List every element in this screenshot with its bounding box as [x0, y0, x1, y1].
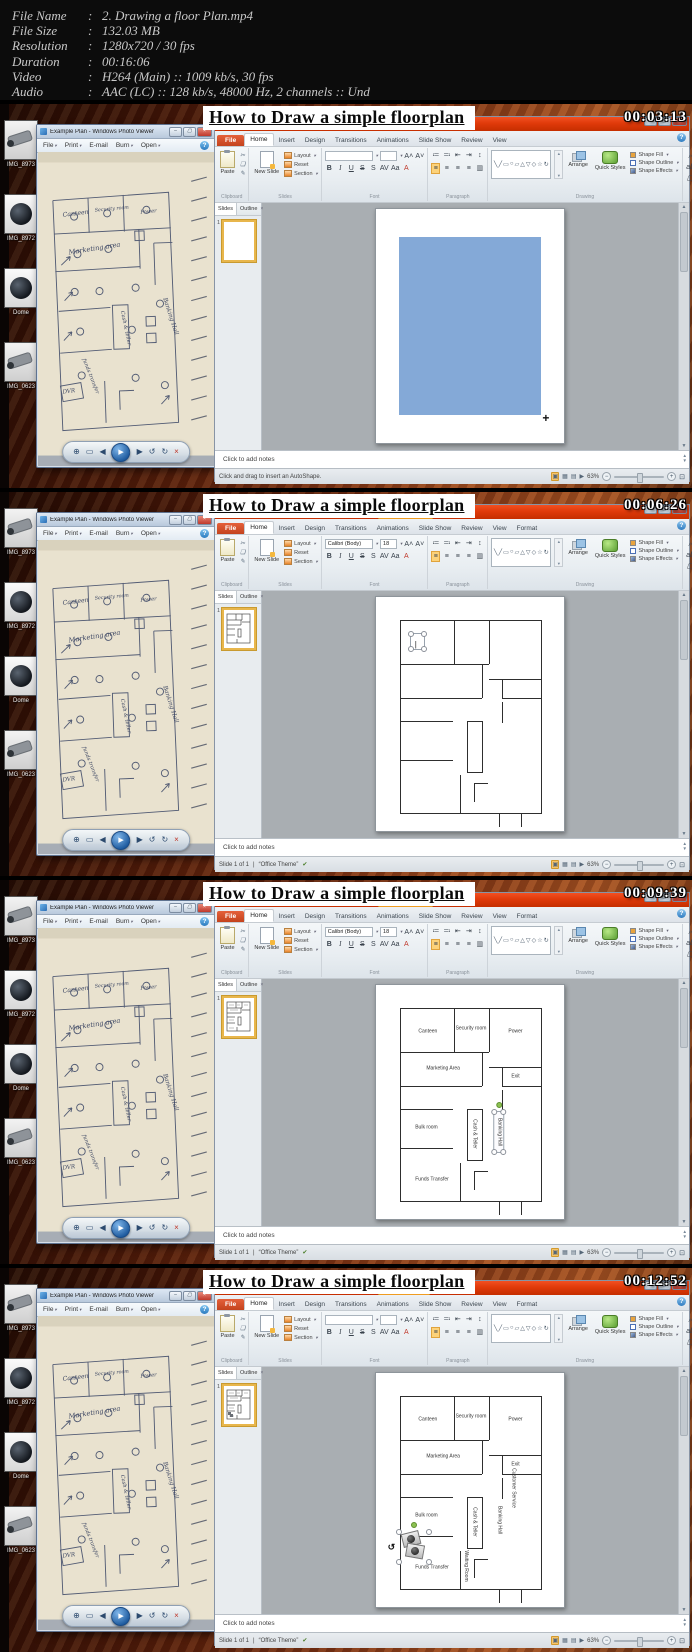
desktop-icon[interactable]: Dome [4, 1044, 38, 1092]
tab-view[interactable]: View [488, 911, 512, 922]
arrange-button[interactable]: Arrange [566, 150, 590, 169]
numbering-icon[interactable]: ≕ [442, 151, 451, 160]
zoom-slider[interactable] [614, 476, 664, 478]
align-left-icon[interactable]: ≡ [431, 939, 440, 950]
scroll-up-icon[interactable]: ▲ [682, 980, 687, 986]
desktop-icon[interactable]: IMG_8972 [4, 582, 38, 630]
copy-icon[interactable]: ❏ [240, 1325, 245, 1332]
section-button[interactable]: Section▾ [284, 170, 318, 177]
tab-outline[interactable]: Outline [237, 1370, 260, 1376]
strikethrough-button[interactable]: S [358, 164, 367, 173]
tab-design[interactable]: Design [300, 135, 330, 146]
tab-animations[interactable]: Animations [372, 135, 414, 146]
desktop-icon[interactable]: IMG_8973 [4, 508, 38, 556]
justify-icon[interactable]: ≡ [464, 1328, 473, 1337]
shapes-gallery[interactable]: ╲╱▭○▱ △▽◇☆↻ [491, 538, 551, 567]
zoom-slider[interactable] [614, 864, 664, 866]
slide[interactable]: + [375, 596, 565, 832]
tab-animations[interactable]: Animations [372, 1299, 414, 1310]
slideshow-button[interactable]: ▶ [112, 443, 131, 462]
new-slide-button[interactable]: New Slide [252, 538, 281, 564]
notes-pane[interactable]: Click to add notes ▲▼ [215, 838, 689, 856]
normal-view-icon[interactable]: ▣ [551, 860, 559, 869]
room-label[interactable]: Customer Service [510, 1468, 516, 1508]
paste-button[interactable]: Paste [218, 926, 237, 952]
slideshow-view-icon[interactable]: ▶ [579, 473, 584, 480]
grow-font-icon[interactable]: A˄ [404, 540, 413, 549]
selected-textbox[interactable]: | [410, 633, 425, 650]
shape-fill-button[interactable]: Shape Fill▾ [630, 540, 678, 546]
underline-button[interactable]: U [347, 552, 356, 561]
rotate-ccw-button[interactable]: ↺ [149, 836, 156, 844]
scrollbar-thumb[interactable] [680, 600, 688, 660]
font-color-button[interactable]: A [402, 552, 411, 561]
scrollbar-thumb[interactable] [680, 988, 688, 1048]
columns-icon[interactable]: ▥ [475, 1328, 484, 1337]
room-label[interactable]: Banking Hall [493, 1111, 505, 1153]
layout-button[interactable]: Layout▾ [284, 1316, 318, 1323]
gallery-scrollbar[interactable]: ▲▼ [554, 1314, 563, 1343]
notes-placeholder[interactable]: Click to add notes [223, 1232, 275, 1239]
align-left-icon[interactable]: ≡ [431, 1327, 440, 1338]
tab-design[interactable]: Design [300, 523, 330, 534]
zoom-slider-thumb[interactable] [637, 1249, 643, 1259]
tab-insert[interactable]: Insert [274, 1299, 300, 1310]
menu-file[interactable]: File▾ [43, 142, 57, 149]
quick-styles-button[interactable]: Quick Styles [593, 538, 628, 560]
room-label[interactable]: Bulk room [415, 1126, 438, 1132]
font-size-select[interactable] [380, 1315, 397, 1325]
vertical-scrollbar[interactable]: ▲▼ [678, 203, 689, 450]
room-label[interactable]: Exit [511, 1074, 519, 1080]
menu-open[interactable]: Open▾ [141, 1306, 160, 1313]
zoom-out-icon[interactable]: − [602, 860, 611, 869]
find-button[interactable]: ⌕Find [686, 1316, 692, 1325]
zoom-in-icon[interactable]: + [667, 860, 676, 869]
rotate-ccw-button[interactable]: ↺ [149, 448, 156, 456]
vertical-scrollbar[interactable]: ▲▼ [678, 1367, 689, 1614]
text-shadow-button[interactable]: S [369, 940, 378, 949]
italic-button[interactable]: I [336, 164, 345, 173]
font-size-select[interactable]: 18 [380, 927, 397, 937]
tab-slide-show[interactable]: Slide Show [414, 523, 457, 534]
vertical-scrollbar[interactable]: ▲▼ [678, 979, 689, 1226]
tab-review[interactable]: Review [456, 523, 487, 534]
tab-review[interactable]: Review [456, 911, 487, 922]
change-case-icon[interactable]: Aa [391, 552, 400, 561]
tab-insert[interactable]: Insert [274, 523, 300, 534]
menu-file[interactable]: File▾ [43, 1306, 57, 1313]
select-button[interactable]: ▢Select▾ [686, 174, 692, 183]
slideshow-view-icon[interactable]: ▶ [579, 1249, 584, 1256]
shape-fill-button[interactable]: Shape Fill▾ [630, 1316, 678, 1322]
menu-open[interactable]: Open▾ [141, 918, 160, 925]
decrease-indent-icon[interactable]: ⇤ [453, 927, 462, 936]
text-shadow-button[interactable]: S [369, 552, 378, 561]
room-label[interactable]: Funds Transfer [415, 1565, 449, 1571]
notes-pane[interactable]: Click to add notes ▲▼ [215, 1226, 689, 1244]
delete-button[interactable]: × [174, 448, 179, 456]
actual-size-icon[interactable]: ▭ [86, 1224, 94, 1232]
change-case-icon[interactable]: Aa [391, 164, 400, 173]
slideshow-button[interactable]: ▶ [112, 831, 131, 850]
shapes-gallery[interactable]: ╲╱▭○▱ △▽◇☆↻ [491, 926, 551, 955]
italic-button[interactable]: I [336, 552, 345, 561]
previous-button[interactable]: ◀ [99, 1612, 105, 1620]
desktop-icon[interactable]: IMG_0623 [4, 1118, 38, 1166]
decrease-indent-icon[interactable]: ⇤ [453, 151, 462, 160]
select-button[interactable]: ▢Select▾ [686, 1338, 692, 1347]
desktop-icon[interactable]: IMG_8972 [4, 1358, 38, 1406]
align-right-icon[interactable]: ≡ [453, 552, 462, 561]
align-center-icon[interactable]: ≡ [442, 164, 451, 173]
paste-button[interactable]: Paste [218, 538, 237, 564]
arrange-button[interactable]: Arrange [566, 926, 590, 945]
zoom-slider[interactable] [614, 1252, 664, 1254]
scroll-up-icon[interactable]: ▲ [682, 1368, 687, 1374]
minimize-button[interactable]: – [169, 903, 182, 913]
shape-outline-button[interactable]: Shape Outline▾ [630, 548, 678, 554]
tab-format[interactable]: Format [512, 523, 543, 534]
line-spacing-icon[interactable]: ↕ [475, 539, 484, 548]
cut-icon[interactable]: ✂ [240, 540, 245, 547]
format-painter-icon[interactable]: ✎ [240, 1334, 245, 1341]
italic-button[interactable]: I [336, 940, 345, 949]
room-label[interactable]: Canteen [418, 1418, 437, 1424]
photo-viewer-titlebar[interactable]: Example Plan - Windows Photo Viewer –▢× [37, 125, 215, 139]
tab-file[interactable]: File [217, 1299, 244, 1310]
menu-email[interactable]: E-mail [89, 1306, 107, 1313]
slide-thumbnail[interactable] [222, 608, 256, 650]
numbering-icon[interactable]: ≕ [442, 539, 451, 548]
format-painter-icon[interactable]: ✎ [240, 170, 245, 177]
shape-effects-button[interactable]: Shape Effects▾ [630, 1332, 678, 1338]
bullets-icon[interactable]: ≔ [431, 151, 440, 160]
shape-effects-button[interactable]: Shape Effects▾ [630, 168, 678, 174]
zoom-slider-thumb[interactable] [637, 1637, 643, 1647]
tab-review[interactable]: Review [456, 135, 487, 146]
minimize-button[interactable]: – [169, 127, 182, 137]
rotate-cw-button[interactable]: ↻ [161, 836, 168, 844]
columns-icon[interactable]: ▥ [475, 552, 484, 561]
grow-font-icon[interactable]: A˄ [404, 928, 413, 937]
previous-button[interactable]: ◀ [99, 448, 105, 456]
copy-icon[interactable]: ❏ [240, 549, 245, 556]
reset-button[interactable]: Reset [284, 161, 318, 168]
numbering-icon[interactable]: ≕ [442, 1315, 451, 1324]
strikethrough-button[interactable]: S [358, 940, 367, 949]
menu-print[interactable]: Print▾ [65, 530, 82, 537]
room-label[interactable]: Exit [511, 1462, 519, 1468]
find-button[interactable]: ⌕Find [686, 152, 692, 161]
section-button[interactable]: Section▾ [284, 946, 318, 953]
tab-home[interactable]: Home [244, 521, 273, 534]
slideshow-view-icon[interactable]: ▶ [579, 861, 584, 868]
layout-button[interactable]: Layout▾ [284, 152, 318, 159]
line-spacing-icon[interactable]: ↕ [475, 927, 484, 936]
shape-outline-button[interactable]: Shape Outline▾ [630, 160, 678, 166]
arrange-button[interactable]: Arrange [566, 538, 590, 557]
shape-outline-button[interactable]: Shape Outline▾ [630, 936, 678, 942]
new-slide-button[interactable]: New Slide [252, 926, 281, 952]
increase-indent-icon[interactable]: ⇥ [464, 539, 473, 548]
font-name-select[interactable]: Calibri (Body) [325, 927, 373, 937]
cut-icon[interactable]: ✂ [240, 1316, 245, 1323]
new-slide-button[interactable]: New Slide [252, 150, 281, 176]
cut-icon[interactable]: ✂ [240, 928, 245, 935]
next-button[interactable]: ▶ [137, 1612, 143, 1620]
zoom-icon[interactable]: ⊕ [73, 836, 80, 844]
underline-button[interactable]: U [347, 1328, 356, 1337]
room-label[interactable]: Power [508, 1030, 522, 1036]
notes-scrollbar[interactable]: ▲▼ [683, 841, 687, 851]
quick-styles-button[interactable]: Quick Styles [593, 926, 628, 948]
section-button[interactable]: Section▾ [284, 558, 318, 565]
shapes-gallery[interactable]: ╲╱▭○▱ △▽◇☆↻ [491, 150, 551, 179]
menu-open[interactable]: Open▾ [141, 530, 160, 537]
change-case-icon[interactable]: Aa [391, 1328, 400, 1337]
replace-button[interactable]: abReplace▾ [686, 163, 692, 172]
replace-button[interactable]: abReplace▾ [686, 1327, 692, 1336]
tab-view[interactable]: View [488, 1299, 512, 1310]
section-button[interactable]: Section▾ [284, 1334, 318, 1341]
slide[interactable]: + [375, 208, 565, 444]
room-label[interactable]: Marketing Area [426, 1454, 460, 1460]
zoom-in-icon[interactable]: + [667, 1636, 676, 1645]
maximize-button[interactable]: ▢ [183, 1291, 196, 1301]
character-spacing-icon[interactable]: AV [380, 940, 389, 949]
character-spacing-icon[interactable]: AV [380, 552, 389, 561]
zoom-out-icon[interactable]: − [602, 1636, 611, 1645]
justify-icon[interactable]: ≡ [464, 552, 473, 561]
desktop-icon[interactable]: IMG_0623 [4, 1506, 38, 1554]
room-label[interactable]: Funds Transfer [415, 1177, 449, 1183]
photo-viewer-titlebar[interactable]: Example Plan - Windows Photo Viewer –▢× [37, 513, 215, 527]
notes-placeholder[interactable]: Click to add notes [223, 456, 275, 463]
menu-burn[interactable]: Burn▾ [116, 1306, 133, 1313]
notes-scrollbar[interactable]: ▲▼ [683, 453, 687, 463]
desktop-icon[interactable]: IMG_8972 [4, 194, 38, 242]
reading-view-icon[interactable]: ▤ [571, 1249, 577, 1256]
slide-sorter-view-icon[interactable]: ▦ [562, 473, 568, 480]
shape-fill-button[interactable]: Shape Fill▾ [630, 928, 678, 934]
menu-burn[interactable]: Burn▾ [116, 530, 133, 537]
slide-sorter-view-icon[interactable]: ▦ [562, 861, 568, 868]
tab-home[interactable]: Home [244, 1297, 273, 1310]
tab-animations[interactable]: Animations [372, 911, 414, 922]
font-color-button[interactable]: A [402, 164, 411, 173]
shape-effects-button[interactable]: Shape Effects▾ [630, 556, 678, 562]
replace-button[interactable]: abReplace▾ [686, 551, 692, 560]
previous-button[interactable]: ◀ [99, 1224, 105, 1232]
underline-button[interactable]: U [347, 940, 356, 949]
spellcheck-icon[interactable]: ✔ [302, 1249, 307, 1256]
find-button[interactable]: ⌕Find [686, 928, 692, 937]
normal-view-icon[interactable]: ▣ [551, 472, 559, 481]
desktop-icon[interactable]: Dome [4, 1432, 38, 1480]
scroll-down-icon[interactable]: ▼ [682, 831, 687, 837]
scroll-down-icon[interactable]: ▼ [682, 443, 687, 449]
reset-button[interactable]: Reset [284, 1325, 318, 1332]
text-shadow-button[interactable]: S [369, 164, 378, 173]
text-shadow-button[interactable]: S [369, 1328, 378, 1337]
cut-icon[interactable]: ✂ [240, 152, 245, 159]
align-center-icon[interactable]: ≡ [442, 940, 451, 949]
room-label[interactable]: Cash & Teller [471, 1119, 477, 1149]
increase-indent-icon[interactable]: ⇥ [464, 927, 473, 936]
arrange-button[interactable]: Arrange [566, 1314, 590, 1333]
slide-thumbnail[interactable] [222, 996, 256, 1038]
increase-indent-icon[interactable]: ⇥ [464, 1315, 473, 1324]
paste-button[interactable]: Paste [218, 1314, 237, 1340]
photo-viewer-titlebar[interactable]: Example Plan - Windows Photo Viewer –▢× [37, 901, 215, 915]
rotate-ccw-button[interactable]: ↺ [149, 1224, 156, 1232]
justify-icon[interactable]: ≡ [464, 164, 473, 173]
zoom-out-icon[interactable]: − [602, 1248, 611, 1257]
scroll-up-icon[interactable]: ▲ [682, 204, 687, 210]
rotate-cw-button[interactable]: ↻ [161, 448, 168, 456]
previous-button[interactable]: ◀ [99, 836, 105, 844]
help-icon[interactable]: ? [200, 917, 209, 926]
notes-scrollbar[interactable]: ▲▼ [683, 1229, 687, 1239]
align-right-icon[interactable]: ≡ [453, 1328, 462, 1337]
copy-icon[interactable]: ❏ [240, 937, 245, 944]
menu-burn[interactable]: Burn▾ [116, 142, 133, 149]
tab-outline[interactable]: Outline [237, 982, 260, 988]
zoom-in-icon[interactable]: + [667, 1248, 676, 1257]
tab-slides[interactable]: Slides [215, 591, 237, 603]
tab-view[interactable]: View [488, 523, 512, 534]
decrease-indent-icon[interactable]: ⇤ [453, 539, 462, 548]
zoom-icon[interactable]: ⊕ [73, 448, 80, 456]
shape-outline-button[interactable]: Shape Outline▾ [630, 1324, 678, 1330]
shape-effects-button[interactable]: Shape Effects▾ [630, 944, 678, 950]
vertical-scrollbar[interactable]: ▲▼ [678, 591, 689, 838]
gallery-scrollbar[interactable]: ▲▼ [554, 538, 563, 567]
maximize-button[interactable]: ▢ [183, 127, 196, 137]
slideshow-view-icon[interactable]: ▶ [579, 1637, 584, 1644]
shape-fill-button[interactable]: Shape Fill▾ [630, 152, 678, 158]
rotate-cw-button[interactable]: ↻ [161, 1612, 168, 1620]
spellcheck-icon[interactable]: ✔ [302, 861, 307, 868]
menu-email[interactable]: E-mail [89, 530, 107, 537]
line-spacing-icon[interactable]: ↕ [475, 1315, 484, 1324]
desktop-icon[interactable]: IMG_8972 [4, 970, 38, 1018]
format-painter-icon[interactable]: ✎ [240, 946, 245, 953]
tab-insert[interactable]: Insert [274, 135, 300, 146]
reset-button[interactable]: Reset [284, 549, 318, 556]
tab-file[interactable]: File [217, 523, 244, 534]
room-label[interactable]: Security room [456, 1026, 487, 1032]
help-icon[interactable]: ? [677, 1297, 686, 1306]
tab-design[interactable]: Design [300, 911, 330, 922]
tab-format[interactable]: Format [512, 1299, 543, 1310]
columns-icon[interactable]: ▥ [475, 164, 484, 173]
bold-button[interactable]: B [325, 940, 334, 949]
slideshow-button[interactable]: ▶ [112, 1219, 131, 1238]
numbering-icon[interactable]: ≕ [442, 927, 451, 936]
quick-styles-button[interactable]: Quick Styles [593, 1314, 628, 1336]
slide-sorter-view-icon[interactable]: ▦ [562, 1249, 568, 1256]
tab-home[interactable]: Home [244, 133, 273, 146]
reading-view-icon[interactable]: ▤ [571, 861, 577, 868]
room-label[interactable]: Cash & Teller [471, 1507, 477, 1537]
help-icon[interactable]: ? [677, 909, 686, 918]
format-painter-icon[interactable]: ✎ [240, 558, 245, 565]
strikethrough-button[interactable]: S [358, 1328, 367, 1337]
gallery-scrollbar[interactable]: ▲▼ [554, 150, 563, 179]
tab-transitions[interactable]: Transitions [330, 523, 372, 534]
tab-review[interactable]: Review [456, 1299, 487, 1310]
desktop-icon[interactable]: IMG_8973 [4, 120, 38, 168]
menu-email[interactable]: E-mail [89, 142, 107, 149]
align-left-icon[interactable]: ≡ [431, 551, 440, 562]
slide[interactable]: + [375, 1372, 565, 1608]
bold-button[interactable]: B [325, 1328, 334, 1337]
font-name-select[interactable]: Calibri (Body) [325, 539, 373, 549]
room-label[interactable]: Waiting Room [463, 1551, 469, 1582]
italic-button[interactable]: I [336, 1328, 345, 1337]
help-icon[interactable]: ? [677, 521, 686, 530]
slideshow-button[interactable]: ▶ [112, 1607, 131, 1626]
room-label[interactable]: Security room [456, 1414, 487, 1420]
zoom-out-icon[interactable]: − [602, 472, 611, 481]
strikethrough-button[interactable]: S [358, 552, 367, 561]
menu-open[interactable]: Open▾ [141, 142, 160, 149]
notes-pane[interactable]: Click to add notes ▲▼ [215, 450, 689, 468]
font-size-select[interactable]: 18 [380, 539, 397, 549]
replace-button[interactable]: abReplace▾ [686, 939, 692, 948]
align-center-icon[interactable]: ≡ [442, 1328, 451, 1337]
next-button[interactable]: ▶ [137, 448, 143, 456]
shapes-gallery[interactable]: ╲╱▭○▱ △▽◇☆↻ [491, 1314, 551, 1343]
scroll-down-icon[interactable]: ▼ [682, 1219, 687, 1225]
actual-size-icon[interactable]: ▭ [86, 1612, 94, 1620]
selected-picture[interactable]: ↺ [399, 1532, 429, 1562]
character-spacing-icon[interactable]: AV [380, 164, 389, 173]
paste-button[interactable]: Paste [218, 150, 237, 176]
tab-file[interactable]: File [217, 911, 244, 922]
tab-transitions[interactable]: Transitions [330, 1299, 372, 1310]
notes-placeholder[interactable]: Click to add notes [223, 844, 275, 851]
actual-size-icon[interactable]: ▭ [86, 448, 94, 456]
menu-print[interactable]: Print▾ [65, 142, 82, 149]
tab-file[interactable]: File [217, 135, 244, 146]
menu-print[interactable]: Print▾ [65, 918, 82, 925]
minimize-button[interactable]: – [169, 515, 182, 525]
quick-styles-button[interactable]: Quick Styles [593, 150, 628, 172]
align-center-icon[interactable]: ≡ [442, 552, 451, 561]
grow-font-icon[interactable]: A˄ [404, 152, 413, 161]
delete-button[interactable]: × [174, 836, 179, 844]
scrollbar-thumb[interactable] [680, 212, 688, 272]
next-button[interactable]: ▶ [137, 1224, 143, 1232]
font-name-select[interactable] [325, 1315, 373, 1325]
desktop-icon[interactable]: Dome [4, 656, 38, 704]
delete-button[interactable]: × [174, 1612, 179, 1620]
slide[interactable]: + [375, 984, 565, 1220]
menu-file[interactable]: File▾ [43, 530, 57, 537]
rotate-cw-button[interactable]: ↻ [161, 1224, 168, 1232]
font-name-select[interactable] [325, 151, 373, 161]
columns-icon[interactable]: ▥ [475, 940, 484, 949]
tab-design[interactable]: Design [300, 1299, 330, 1310]
font-color-button[interactable]: A [402, 1328, 411, 1337]
layout-button[interactable]: Layout▾ [284, 540, 318, 547]
spellcheck-icon[interactable]: ✔ [302, 1637, 307, 1644]
normal-view-icon[interactable]: ▣ [551, 1636, 559, 1645]
zoom-icon[interactable]: ⊕ [73, 1224, 80, 1232]
